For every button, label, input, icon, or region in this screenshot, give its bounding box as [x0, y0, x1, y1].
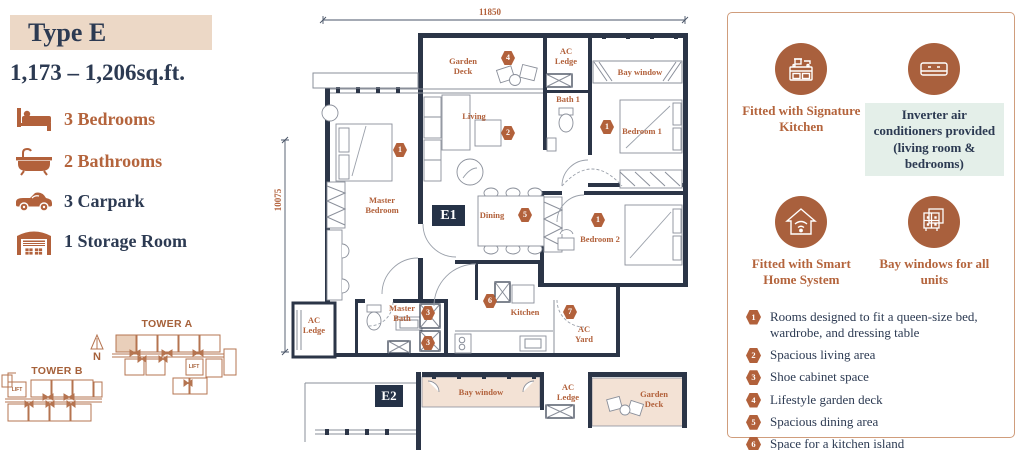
- room-ac-ledge-top: AC Ledge: [549, 46, 583, 66]
- unit-badge-e1: E1: [432, 205, 465, 226]
- floorplan: 11850 10075 E1 E2 Garden Deck AC Ledge B…: [270, 0, 720, 450]
- bed-icon: [14, 104, 54, 134]
- legend-badge-6: 6: [746, 437, 761, 450]
- room-master-bedroom: Master Bedroom: [357, 195, 407, 215]
- tower-b-label: TOWER B: [31, 365, 83, 377]
- panel-feature-smart-home: Fitted with Smart Home System: [742, 196, 861, 289]
- room-ac-ledge-e2: AC Ledge: [551, 382, 585, 402]
- room-ac-ledge-left: AC Ledge: [297, 315, 331, 335]
- panel-feature-bay-windows: Bay windows for all units: [865, 196, 1004, 289]
- feature-bathrooms: 2 Bathrooms: [14, 146, 162, 176]
- legend-text-1: Rooms designed to fit a queen-size bed, …: [770, 309, 1000, 342]
- dimension-height: 10075: [273, 189, 283, 212]
- legend-text-6: Space for a kitchen island: [770, 436, 904, 450]
- panel-features-grid: Fitted with Signature Kitchen Inverter a…: [742, 43, 1000, 289]
- feature-storage-label: 1 Storage Room: [64, 231, 187, 252]
- floorplan-brochure: Type E 1,173 – 1,206sq.ft. 3 Bedrooms 2 …: [0, 0, 1024, 450]
- smart-home-icon: [775, 196, 827, 248]
- room-bath1: Bath 1: [556, 94, 580, 104]
- legend-item-2: 2 Spacious living area: [746, 347, 1000, 363]
- room-bedroom2: Bedroom 2: [578, 234, 622, 244]
- north-label: N: [93, 351, 101, 363]
- panel-feature-bay-windows-label: Bay windows for all units: [865, 256, 1004, 289]
- room-bay-window-bed1: Bay window: [618, 67, 663, 77]
- room-bay-window-e2: Bay window: [459, 387, 504, 397]
- legend-badge-5: 5: [746, 415, 761, 430]
- room-living: Living: [462, 111, 486, 121]
- unit-badge-e2: E2: [375, 385, 403, 407]
- room-garden-deck: Garden Deck: [442, 56, 484, 76]
- signature-kitchen-icon: [775, 43, 827, 95]
- legend-item-3: 3 Shoe cabinet space: [746, 369, 1000, 385]
- unit-type-title: Type E: [28, 18, 106, 48]
- room-garden-deck-e2: Garden Deck: [633, 389, 675, 409]
- legend-badge-3: 3: [746, 370, 761, 385]
- unit-area: 1,173 – 1,206sq.ft.: [10, 60, 185, 86]
- dimension-width: 11850: [479, 7, 501, 17]
- legend-badge-1: 1: [746, 310, 761, 325]
- feature-carpark-label: 3 Carpark: [64, 191, 145, 212]
- legend-item-6: 6 Space for a kitchen island: [746, 436, 1000, 450]
- legend-text-5: Spacious dining area: [770, 414, 878, 430]
- legend-item-4: 4 Lifestyle garden deck: [746, 392, 1000, 408]
- legend-text-3: Shoe cabinet space: [770, 369, 869, 385]
- feature-carpark: 3 Carpark: [14, 186, 145, 216]
- legend-item-5: 5 Spacious dining area: [746, 414, 1000, 430]
- legend-item-1: 1 Rooms designed to fit a queen-size bed…: [746, 309, 1000, 342]
- bay-window-icon: [908, 196, 960, 248]
- car-icon: [14, 186, 54, 216]
- room-bedroom1: Bedroom 1: [620, 126, 664, 136]
- panel-feature-inverter-ac-label: Inverter air conditioners provided (livi…: [865, 103, 1004, 176]
- feature-bathrooms-label: 2 Bathrooms: [64, 151, 162, 172]
- room-master-bath: Master Bath: [382, 303, 422, 323]
- storage-room-icon: [14, 226, 54, 256]
- room-ac-yard: AC Yard: [569, 324, 599, 344]
- legend-badge-2: 2: [746, 348, 761, 363]
- lift-b-label: LIFT: [12, 387, 23, 393]
- bathtub-icon: [14, 146, 54, 176]
- legend-badge-4: 4: [746, 393, 761, 408]
- panel-feature-inverter-ac: Inverter air conditioners provided (livi…: [865, 43, 1004, 176]
- feature-bedrooms: 3 Bedrooms: [14, 104, 155, 134]
- room-dining: Dining: [480, 210, 505, 220]
- lift-a-label: LIFT: [189, 364, 200, 370]
- legend-text-4: Lifestyle garden deck: [770, 392, 883, 408]
- feature-storage: 1 Storage Room: [14, 226, 187, 256]
- plan-legend: 1 Rooms designed to fit a queen-size bed…: [742, 309, 1000, 450]
- inverter-ac-icon: [908, 43, 960, 95]
- panel-feature-smart-home-label: Fitted with Smart Home System: [742, 256, 861, 289]
- feature-bedrooms-label: 3 Bedrooms: [64, 109, 155, 130]
- site-plan: TOWER A TOWER B N LIFT LIFT: [0, 283, 268, 450]
- panel-feature-kitchen-label: Fitted with Signature Kitchen: [742, 103, 861, 136]
- panel-feature-kitchen: Fitted with Signature Kitchen: [742, 43, 861, 176]
- room-kitchen: Kitchen: [511, 307, 540, 317]
- features-panel: Fitted with Signature Kitchen Inverter a…: [727, 12, 1015, 438]
- legend-text-2: Spacious living area: [770, 347, 875, 363]
- tower-a-label: TOWER A: [141, 318, 192, 330]
- type-header: Type E: [10, 15, 212, 50]
